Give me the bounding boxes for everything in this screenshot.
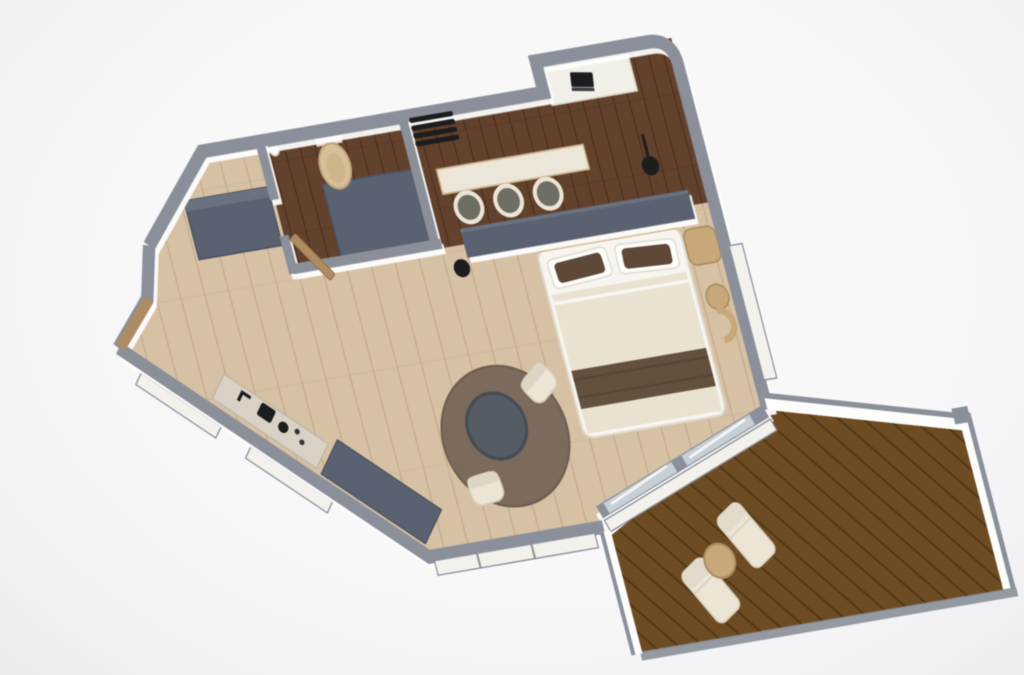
floor-plan-svg — [0, 0, 1024, 675]
bed-pillow — [614, 238, 680, 274]
floor-plan-image — [0, 0, 1024, 675]
laptop — [570, 72, 594, 89]
wardrobe — [184, 187, 282, 260]
